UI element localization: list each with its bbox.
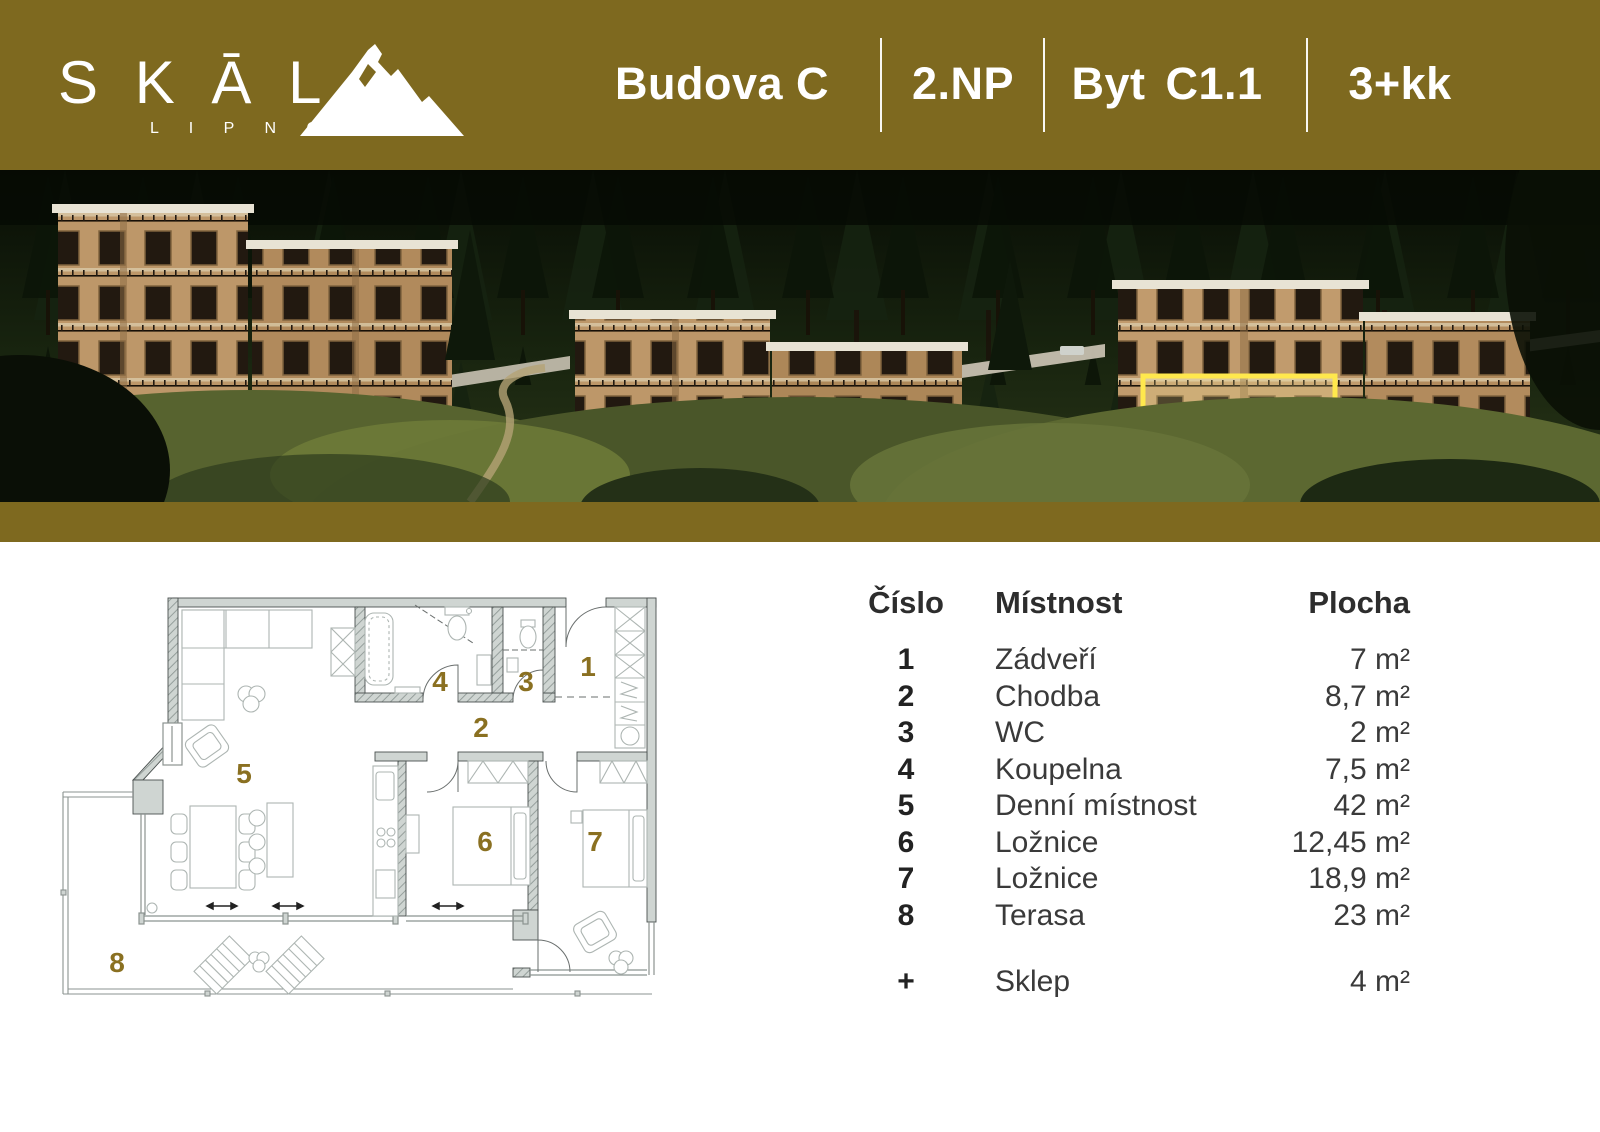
room-label-6: 6: [477, 826, 493, 857]
room-table-header: Číslo Místnost Plocha: [860, 585, 1410, 631]
row-area: 4 m²: [1260, 965, 1410, 999]
row-number: 4: [860, 753, 952, 787]
table-row: 3 WC 2 m²: [860, 716, 1410, 753]
table-row: 6 Ložnice 12,45 m²: [860, 826, 1410, 863]
mountain-logo-icon: [296, 34, 506, 144]
row-number: 6: [860, 826, 952, 860]
brand-letters: S K Ā L: [58, 48, 331, 117]
building-render-photo: [0, 170, 1600, 502]
room-label-2: 2: [473, 712, 489, 743]
room-label-3: 3: [518, 666, 534, 697]
sliding-door-arrows: [207, 903, 463, 909]
title-building: Budova C: [615, 58, 829, 110]
table-row: 7 Ložnice 18,9 m²: [860, 862, 1410, 899]
row-room: Terasa: [952, 899, 1260, 933]
col-header-room: Místnost: [952, 585, 1260, 621]
row-area: 42 m²: [1260, 789, 1410, 823]
room-label-8: 8: [109, 947, 125, 978]
title-unit-prefix: Byt: [1071, 58, 1145, 109]
room-table-rows: 1 Zádveří 7 m² 2 Chodba 8,7 m² 3 WC 2 m²…: [860, 643, 1410, 1002]
table-row: 8 Terasa 23 m²: [860, 899, 1410, 936]
row-number: 7: [860, 862, 952, 896]
room-table: Číslo Místnost Plocha 1 Zádveří 7 m² 2 C…: [860, 585, 1410, 1002]
row-area: 7,5 m²: [1260, 753, 1410, 787]
row-room: Zádveří: [952, 643, 1260, 677]
row-number: 1: [860, 643, 952, 677]
row-room: WC: [952, 716, 1260, 750]
row-number: 8: [860, 899, 952, 933]
table-row: 4 Koupelna 7,5 m²: [860, 753, 1410, 790]
title-divider: [1306, 38, 1308, 132]
row-area: 7 m²: [1260, 643, 1410, 677]
row-room: Denní místnost: [952, 789, 1260, 823]
car: [1060, 346, 1084, 355]
row-number: 3: [860, 716, 952, 750]
row-area: 2 m²: [1260, 716, 1410, 750]
col-header-number: Číslo: [860, 585, 952, 621]
row-room: Koupelna: [952, 753, 1260, 787]
row-room: Sklep: [952, 965, 1260, 999]
col-header-area: Plocha: [1260, 585, 1410, 621]
brochure-page: S K Ā L L I P N O Budova C 2.NP BytC1.1 …: [0, 0, 1600, 1132]
room-label-5: 5: [236, 758, 252, 789]
table-row-extra: + Sklep 4 m²: [860, 965, 1410, 1002]
room-label-1: 1: [580, 651, 596, 682]
brand-logo: S K Ā L L I P N O: [58, 40, 518, 150]
row-room: Ložnice: [952, 862, 1260, 896]
terrace-railing: [61, 792, 652, 996]
furniture: [147, 607, 647, 994]
row-area: 18,9 m²: [1260, 862, 1410, 896]
header-band: S K Ā L L I P N O Budova C 2.NP BytC1.1 …: [0, 0, 1600, 170]
title-divider: [880, 38, 882, 132]
title-unit-number: C1.1: [1165, 58, 1262, 109]
title-unit: BytC1.1: [1071, 58, 1262, 110]
row-area: 8,7 m²: [1260, 680, 1410, 714]
row-room: Chodba: [952, 680, 1260, 714]
row-room: Ložnice: [952, 826, 1260, 860]
floor-plan: 1 2 3 4 5 6 7 8: [55, 570, 675, 1000]
title-disposition: 3+kk: [1348, 58, 1451, 110]
room-label-7: 7: [587, 826, 603, 857]
row-number: 2: [860, 680, 952, 714]
table-row: 5 Denní místnost 42 m²: [860, 789, 1410, 826]
row-area: 23 m²: [1260, 899, 1410, 933]
row-number: +: [860, 965, 952, 999]
title-divider: [1043, 38, 1045, 132]
title-floor: 2.NP: [912, 58, 1014, 110]
row-area: 12,45 m²: [1260, 826, 1410, 860]
divider-band: [0, 502, 1600, 542]
row-number: 5: [860, 789, 952, 823]
room-label-4: 4: [432, 666, 448, 697]
table-row: 2 Chodba 8,7 m²: [860, 680, 1410, 717]
table-row: 1 Zádveří 7 m²: [860, 643, 1410, 680]
